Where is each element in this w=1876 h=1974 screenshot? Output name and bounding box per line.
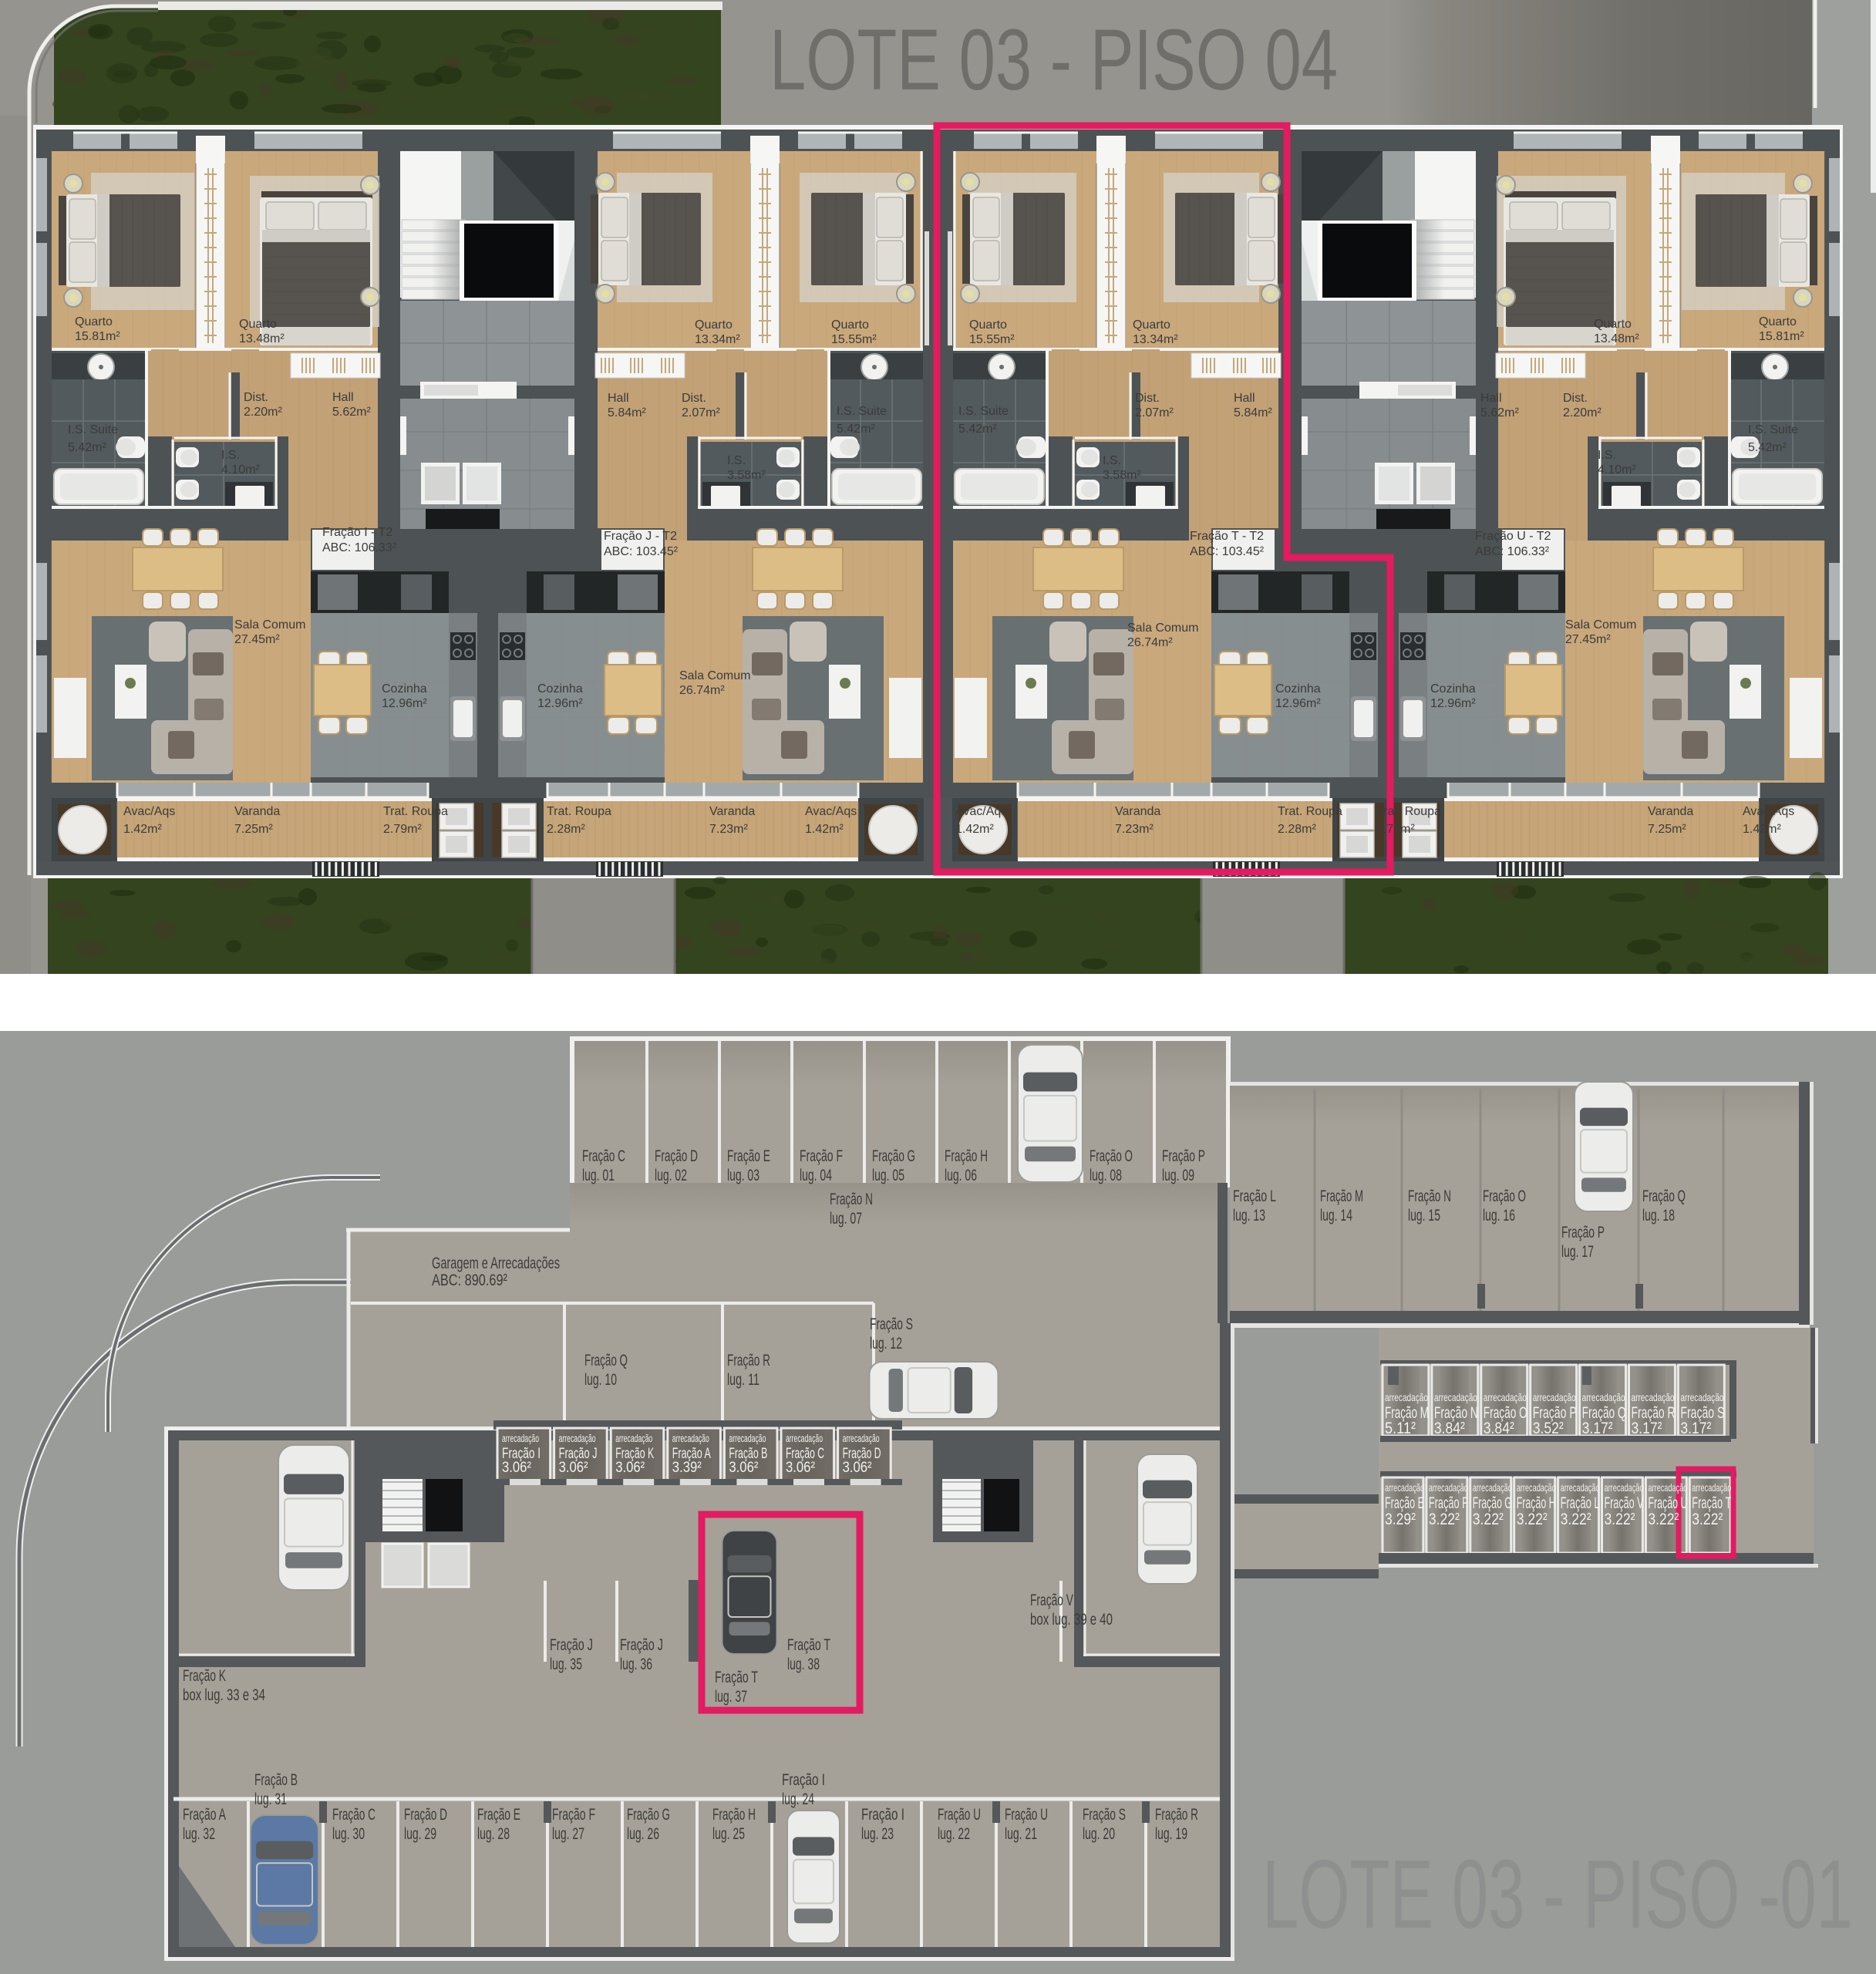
svg-text:I.S.: I.S.	[1103, 454, 1121, 467]
svg-text:Fração E: Fração E	[727, 1147, 770, 1165]
svg-text:lug. 29: lug. 29	[404, 1825, 436, 1843]
svg-text:lug. 07: lug. 07	[830, 1210, 862, 1228]
svg-text:Hall: Hall	[1234, 392, 1255, 405]
svg-text:Fração F: Fração F	[800, 1147, 843, 1165]
svg-text:lug. 04: lug. 04	[800, 1167, 832, 1184]
svg-text:3.39²: 3.39²	[672, 1460, 702, 1476]
svg-text:I.S.: I.S.	[727, 454, 746, 467]
svg-text:Fração C: Fração C	[582, 1147, 625, 1165]
svg-text:lug. 17: lug. 17	[1561, 1243, 1594, 1261]
svg-text:ABC: 890.69²: ABC: 890.69²	[432, 1272, 507, 1289]
svg-text:Trat. Roupa: Trat. Roupa	[383, 805, 448, 818]
svg-text:lug. 01: lug. 01	[582, 1167, 615, 1184]
svg-text:box lug. 33 e 34: box lug. 33 e 34	[183, 1686, 265, 1704]
svg-text:lug. 21: lug. 21	[1005, 1825, 1037, 1843]
svg-text:Fração S: Fração S	[870, 1315, 913, 1333]
svg-text:Fração R: Fração R	[727, 1352, 770, 1369]
svg-text:lug. 08: lug. 08	[1090, 1167, 1122, 1184]
svg-text:lug. 32: lug. 32	[183, 1825, 215, 1843]
svg-text:12.96m²: 12.96m²	[382, 697, 427, 710]
svg-text:Fração F: Fração F	[552, 1806, 595, 1824]
svg-text:Fração Q: Fração Q	[584, 1352, 628, 1369]
svg-text:Fração H: Fração H	[712, 1806, 756, 1824]
svg-text:I.S.: I.S.	[1598, 449, 1616, 462]
svg-text:lug. 12: lug. 12	[870, 1335, 902, 1352]
svg-text:arrecadação: arrecadação	[1605, 1481, 1644, 1494]
svg-text:Dist.: Dist.	[682, 392, 706, 405]
svg-text:3.58m²: 3.58m²	[727, 469, 766, 482]
svg-text:Fração H: Fração H	[945, 1147, 988, 1165]
svg-text:26.74m²: 26.74m²	[1127, 636, 1173, 649]
svg-text:Fração T: Fração T	[787, 1636, 830, 1654]
svg-text:Fração U: Fração U	[1005, 1806, 1048, 1824]
svg-text:Dist.: Dist.	[1135, 392, 1160, 405]
svg-text:Fração I: Fração I	[782, 1771, 825, 1789]
svg-text:Fração I - T2: Fração I - T2	[322, 526, 392, 539]
svg-text:5.42m²: 5.42m²	[68, 441, 106, 454]
svg-text:Fração M: Fração M	[1320, 1187, 1363, 1205]
svg-text:lug. 35: lug. 35	[550, 1656, 582, 1673]
svg-text:Cozinha: Cozinha	[537, 682, 583, 696]
svg-text:3.52²: 3.52²	[1533, 1420, 1564, 1437]
svg-text:I.S.: I.S.	[221, 449, 240, 462]
svg-text:Sala Comum: Sala Comum	[679, 669, 750, 682]
svg-text:3.29²: 3.29²	[1385, 1511, 1416, 1528]
svg-text:I.S. Suite: I.S. Suite	[958, 405, 1009, 418]
svg-text:Fração U - T2: Fração U - T2	[1475, 530, 1551, 543]
svg-text:27.45m²: 27.45m²	[234, 633, 280, 646]
svg-text:arrecadação: arrecadação	[559, 1433, 596, 1444]
svg-text:12.96m²: 12.96m²	[1275, 697, 1321, 710]
svg-text:7.23m²: 7.23m²	[1115, 823, 1154, 836]
svg-text:Varanda: Varanda	[234, 805, 280, 818]
svg-text:5.42m²: 5.42m²	[1748, 441, 1787, 454]
svg-text:Avac/Aqs: Avac/Aqs	[805, 805, 857, 818]
svg-text:2.79m²: 2.79m²	[1376, 823, 1415, 836]
svg-text:arrecadação: arrecadação	[502, 1433, 539, 1444]
svg-text:arrecadação: arrecadação	[615, 1433, 652, 1444]
svg-text:1.42m²: 1.42m²	[1743, 823, 1781, 836]
svg-text:Sala Comum: Sala Comum	[1565, 618, 1636, 632]
svg-text:lug. 06: lug. 06	[945, 1167, 977, 1184]
svg-text:13.34m²: 13.34m²	[1133, 333, 1178, 346]
svg-text:7.23m²: 7.23m²	[709, 823, 748, 836]
svg-text:3.22²: 3.22²	[1648, 1511, 1679, 1528]
svg-text:7.25m²: 7.25m²	[234, 823, 273, 836]
svg-text:Trat. Roupa: Trat. Roupa	[1376, 805, 1441, 818]
svg-text:lug. 10: lug. 10	[584, 1371, 617, 1389]
svg-text:3.84²: 3.84²	[1484, 1420, 1514, 1437]
svg-text:13.48m²: 13.48m²	[1594, 332, 1639, 345]
svg-text:lug. 11: lug. 11	[727, 1371, 759, 1389]
svg-text:Fração D: Fração D	[404, 1806, 447, 1824]
svg-text:arrecadação: arrecadação	[729, 1433, 766, 1444]
svg-text:Fração L: Fração L	[1561, 1494, 1600, 1512]
svg-text:Fração L: Fração L	[1233, 1187, 1276, 1205]
svg-text:Fração J: Fração J	[620, 1636, 663, 1654]
svg-text:ABC: 103.45²: ABC: 103.45²	[1190, 545, 1265, 558]
svg-text:Fração H: Fração H	[1517, 1494, 1556, 1512]
svg-text:lug. 16: lug. 16	[1483, 1207, 1515, 1224]
svg-text:2.20m²: 2.20m²	[244, 406, 282, 419]
svg-text:Hall: Hall	[1480, 392, 1502, 405]
svg-text:15.81m²: 15.81m²	[75, 330, 120, 343]
svg-text:lug. 37: lug. 37	[715, 1688, 747, 1706]
svg-text:3.17²: 3.17²	[1680, 1420, 1711, 1437]
svg-text:Quarto: Quarto	[969, 318, 1007, 332]
svg-text:ABC: 103.45²: ABC: 103.45²	[604, 545, 679, 558]
svg-text:lug. 36: lug. 36	[620, 1656, 652, 1673]
svg-text:Quarto: Quarto	[1594, 318, 1632, 331]
svg-text:15.55m²: 15.55m²	[969, 333, 1015, 346]
svg-text:5.62m²: 5.62m²	[1480, 406, 1519, 419]
svg-text:Avac/Aqs: Avac/Aqs	[1743, 805, 1794, 818]
svg-text:2.28m²: 2.28m²	[1278, 823, 1316, 836]
svg-text:arrecadação: arrecadação	[1680, 1391, 1723, 1403]
svg-text:Fração N: Fração N	[830, 1191, 873, 1208]
svg-text:Sala Comum: Sala Comum	[234, 618, 305, 632]
svg-text:12.96m²: 12.96m²	[537, 697, 583, 710]
svg-text:lug. 25: lug. 25	[712, 1825, 745, 1843]
svg-text:Avac/Aqs: Avac/Aqs	[955, 805, 1007, 818]
svg-text:arrecadação: arrecadação	[1648, 1481, 1687, 1494]
svg-text:Fração Q: Fração Q	[1642, 1187, 1686, 1205]
svg-text:26.74m²: 26.74m²	[679, 684, 725, 697]
svg-text:3.58m²: 3.58m²	[1103, 469, 1141, 482]
svg-text:Fração T - T2: Fração T - T2	[1190, 530, 1264, 543]
svg-text:Quarto: Quarto	[75, 315, 113, 328]
svg-text:Fração P: Fração P	[1162, 1147, 1205, 1165]
svg-text:lug. 26: lug. 26	[627, 1825, 659, 1843]
svg-text:lug. 05: lug. 05	[872, 1167, 904, 1184]
svg-text:lug. 22: lug. 22	[938, 1825, 970, 1843]
svg-text:arrecadação: arrecadação	[1429, 1481, 1468, 1494]
svg-text:3.22²: 3.22²	[1429, 1511, 1460, 1528]
svg-text:Hall: Hall	[332, 391, 354, 404]
svg-text:5.42m²: 5.42m²	[958, 423, 997, 436]
svg-text:lug. 13: lug. 13	[1233, 1207, 1265, 1224]
svg-text:Dist.: Dist.	[244, 391, 268, 404]
svg-text:4.10m²: 4.10m²	[1598, 463, 1636, 477]
svg-text:3.84²: 3.84²	[1434, 1420, 1465, 1437]
svg-text:13.48m²: 13.48m²	[239, 332, 285, 345]
svg-text:Fração P: Fração P	[1561, 1224, 1605, 1241]
svg-text:2.07m²: 2.07m²	[682, 406, 720, 419]
svg-text:lug. 19: lug. 19	[1155, 1825, 1187, 1843]
svg-text:lug. 23: lug. 23	[861, 1825, 894, 1843]
svg-text:arrecadação: arrecadação	[1582, 1391, 1625, 1403]
svg-text:lug. 30: lug. 30	[332, 1825, 365, 1843]
svg-text:3.22²: 3.22²	[1605, 1511, 1635, 1528]
svg-text:arrecadação: arrecadação	[1434, 1391, 1477, 1403]
svg-text:arrecadação: arrecadação	[1473, 1481, 1512, 1494]
svg-text:Cozinha: Cozinha	[1275, 682, 1321, 696]
svg-text:lug. 18: lug. 18	[1642, 1207, 1675, 1224]
svg-text:1.42m²: 1.42m²	[123, 823, 162, 836]
svg-text:Fração N: Fração N	[1408, 1187, 1451, 1205]
svg-text:arrecadação: arrecadação	[1385, 1481, 1424, 1494]
svg-text:Fração T: Fração T	[1692, 1494, 1731, 1512]
svg-text:Hall: Hall	[608, 392, 629, 405]
svg-text:2.20m²: 2.20m²	[1563, 406, 1602, 419]
svg-text:Fração D: Fração D	[655, 1147, 698, 1165]
svg-text:3.06²: 3.06²	[615, 1460, 645, 1476]
svg-text:3.22²: 3.22²	[1473, 1511, 1504, 1528]
svg-text:arrecadação: arrecadação	[843, 1433, 880, 1444]
svg-text:3.06²: 3.06²	[559, 1460, 588, 1476]
svg-text:Fração O: Fração O	[1090, 1147, 1133, 1165]
svg-text:Fração S: Fração S	[1083, 1806, 1126, 1824]
svg-text:Fração T: Fração T	[715, 1669, 758, 1686]
svg-text:3.17²: 3.17²	[1632, 1420, 1662, 1437]
svg-text:Quarto: Quarto	[1759, 315, 1797, 328]
svg-text:Garagem e Arrecadações: Garagem e Arrecadações	[432, 1255, 560, 1272]
svg-text:1.42m²: 1.42m²	[805, 823, 844, 836]
svg-text:12.96m²: 12.96m²	[1430, 697, 1476, 710]
svg-text:Fração J - T2: Fração J - T2	[604, 530, 677, 543]
svg-text:5.84m²: 5.84m²	[1234, 406, 1272, 419]
svg-text:Fração B: Fração B	[254, 1771, 298, 1789]
svg-text:Cozinha: Cozinha	[382, 682, 427, 696]
svg-text:3.22²: 3.22²	[1517, 1511, 1548, 1528]
svg-text:arrecadação: arrecadação	[1385, 1391, 1428, 1403]
svg-text:Fração F: Fração F	[1429, 1494, 1468, 1512]
svg-text:lug. 27: lug. 27	[552, 1825, 584, 1843]
svg-text:arrecadação: arrecadação	[786, 1433, 823, 1444]
svg-text:lug. 20: lug. 20	[1083, 1825, 1115, 1843]
svg-text:Fração A: Fração A	[183, 1806, 226, 1824]
svg-text:lug. 24: lug. 24	[782, 1790, 814, 1808]
svg-text:Fração R: Fração R	[1155, 1806, 1198, 1824]
svg-text:Fração V: Fração V	[1030, 1592, 1073, 1609]
svg-text:2.07m²: 2.07m²	[1135, 406, 1174, 419]
svg-text:2.28m²: 2.28m²	[547, 823, 585, 836]
svg-text:2.79m²: 2.79m²	[383, 823, 422, 836]
svg-text:lug. 02: lug. 02	[655, 1167, 687, 1184]
svg-text:3.22²: 3.22²	[1561, 1511, 1591, 1528]
svg-text:Fração E: Fração E	[477, 1806, 520, 1824]
svg-text:lug. 31: lug. 31	[254, 1790, 287, 1808]
svg-text:7.25m²: 7.25m²	[1648, 823, 1686, 836]
svg-text:3.17²: 3.17²	[1582, 1420, 1613, 1437]
svg-text:arrecadação: arrecadação	[1517, 1481, 1556, 1494]
svg-text:Quarto: Quarto	[1133, 318, 1170, 332]
svg-text:Fração U: Fração U	[938, 1806, 981, 1824]
svg-text:Dist.: Dist.	[1563, 392, 1588, 405]
svg-text:Fração C: Fração C	[332, 1806, 376, 1824]
svg-text:3.06²: 3.06²	[729, 1460, 758, 1476]
svg-text:lug. 09: lug. 09	[1162, 1167, 1194, 1184]
svg-text:I.S. Suite: I.S. Suite	[68, 423, 118, 436]
svg-text:Fração U: Fração U	[1648, 1494, 1687, 1512]
svg-text:5.42m²: 5.42m²	[837, 423, 875, 436]
svg-text:Fração O: Fração O	[1483, 1187, 1526, 1205]
svg-text:Quarto: Quarto	[695, 318, 733, 332]
svg-text:arrecadação: arrecadação	[672, 1433, 709, 1444]
svg-text:Varanda: Varanda	[1648, 805, 1693, 818]
svg-text:15.55m²: 15.55m²	[831, 333, 877, 346]
svg-text:15.81m²: 15.81m²	[1759, 330, 1804, 343]
svg-text:Trat. Roupa: Trat. Roupa	[547, 805, 611, 818]
svg-text:arrecadação: arrecadação	[1533, 1391, 1576, 1403]
svg-text:lug. 28: lug. 28	[477, 1825, 510, 1843]
svg-text:1.42m²: 1.42m²	[955, 823, 994, 836]
svg-text:5.11²: 5.11²	[1385, 1420, 1416, 1437]
svg-text:lug. 03: lug. 03	[727, 1167, 759, 1184]
svg-text:Trat. Roupa: Trat. Roupa	[1278, 805, 1342, 818]
svg-text:ABC: 106.33²: ABC: 106.33²	[322, 541, 397, 554]
svg-text:arrecadação: arrecadação	[1692, 1481, 1731, 1494]
svg-text:Fração V: Fração V	[1605, 1494, 1644, 1512]
svg-text:3.06²: 3.06²	[786, 1460, 815, 1476]
svg-text:Fração G: Fração G	[872, 1147, 915, 1165]
svg-text:Fração I: Fração I	[861, 1806, 904, 1824]
svg-text:Fração E: Fração E	[1385, 1494, 1424, 1512]
svg-text:3.06²: 3.06²	[843, 1460, 872, 1476]
svg-text:4.10m²: 4.10m²	[221, 463, 260, 477]
svg-text:lug. 15: lug. 15	[1408, 1207, 1440, 1224]
svg-text:Quarto: Quarto	[831, 318, 869, 332]
svg-text:Fração J: Fração J	[550, 1636, 593, 1654]
svg-text:Fração G: Fração G	[1473, 1494, 1512, 1512]
svg-text:3.22²: 3.22²	[1692, 1511, 1723, 1528]
svg-text:lug. 14: lug. 14	[1320, 1207, 1352, 1224]
svg-text:LOTE 03 - PISO -01: LOTE 03 - PISO -01	[1262, 1840, 1853, 1949]
svg-text:I.S. Suite: I.S. Suite	[837, 405, 887, 418]
svg-text:I.S. Suite: I.S. Suite	[1748, 423, 1798, 436]
svg-text:ABC: 106.33²: ABC: 106.33²	[1475, 545, 1550, 558]
svg-text:5.62m²: 5.62m²	[332, 406, 371, 419]
svg-text:3.06²: 3.06²	[502, 1460, 531, 1476]
svg-text:Fração K: Fração K	[183, 1667, 226, 1685]
svg-text:5.84m²: 5.84m²	[608, 406, 646, 419]
svg-text:13.34m²: 13.34m²	[695, 333, 740, 346]
svg-text:Quarto: Quarto	[239, 318, 277, 331]
svg-text:27.45m²: 27.45m²	[1565, 633, 1611, 646]
svg-text:arrecadação: arrecadação	[1632, 1391, 1675, 1403]
svg-text:Varanda: Varanda	[1115, 805, 1160, 818]
svg-text:lug. 38: lug. 38	[787, 1656, 820, 1673]
svg-text:box lug. 39 e 40: box lug. 39 e 40	[1030, 1611, 1113, 1629]
svg-text:Varanda: Varanda	[709, 805, 755, 818]
svg-text:arrecadação: arrecadação	[1484, 1391, 1527, 1403]
svg-text:LOTE 03 - PISO 04: LOTE 03 - PISO 04	[770, 12, 1338, 108]
svg-text:arrecadação: arrecadação	[1561, 1481, 1600, 1494]
svg-text:Sala Comum: Sala Comum	[1127, 622, 1198, 635]
svg-text:Cozinha: Cozinha	[1430, 682, 1476, 696]
svg-text:Avac/Aqs: Avac/Aqs	[123, 805, 175, 818]
svg-text:Fração G: Fração G	[627, 1806, 670, 1824]
